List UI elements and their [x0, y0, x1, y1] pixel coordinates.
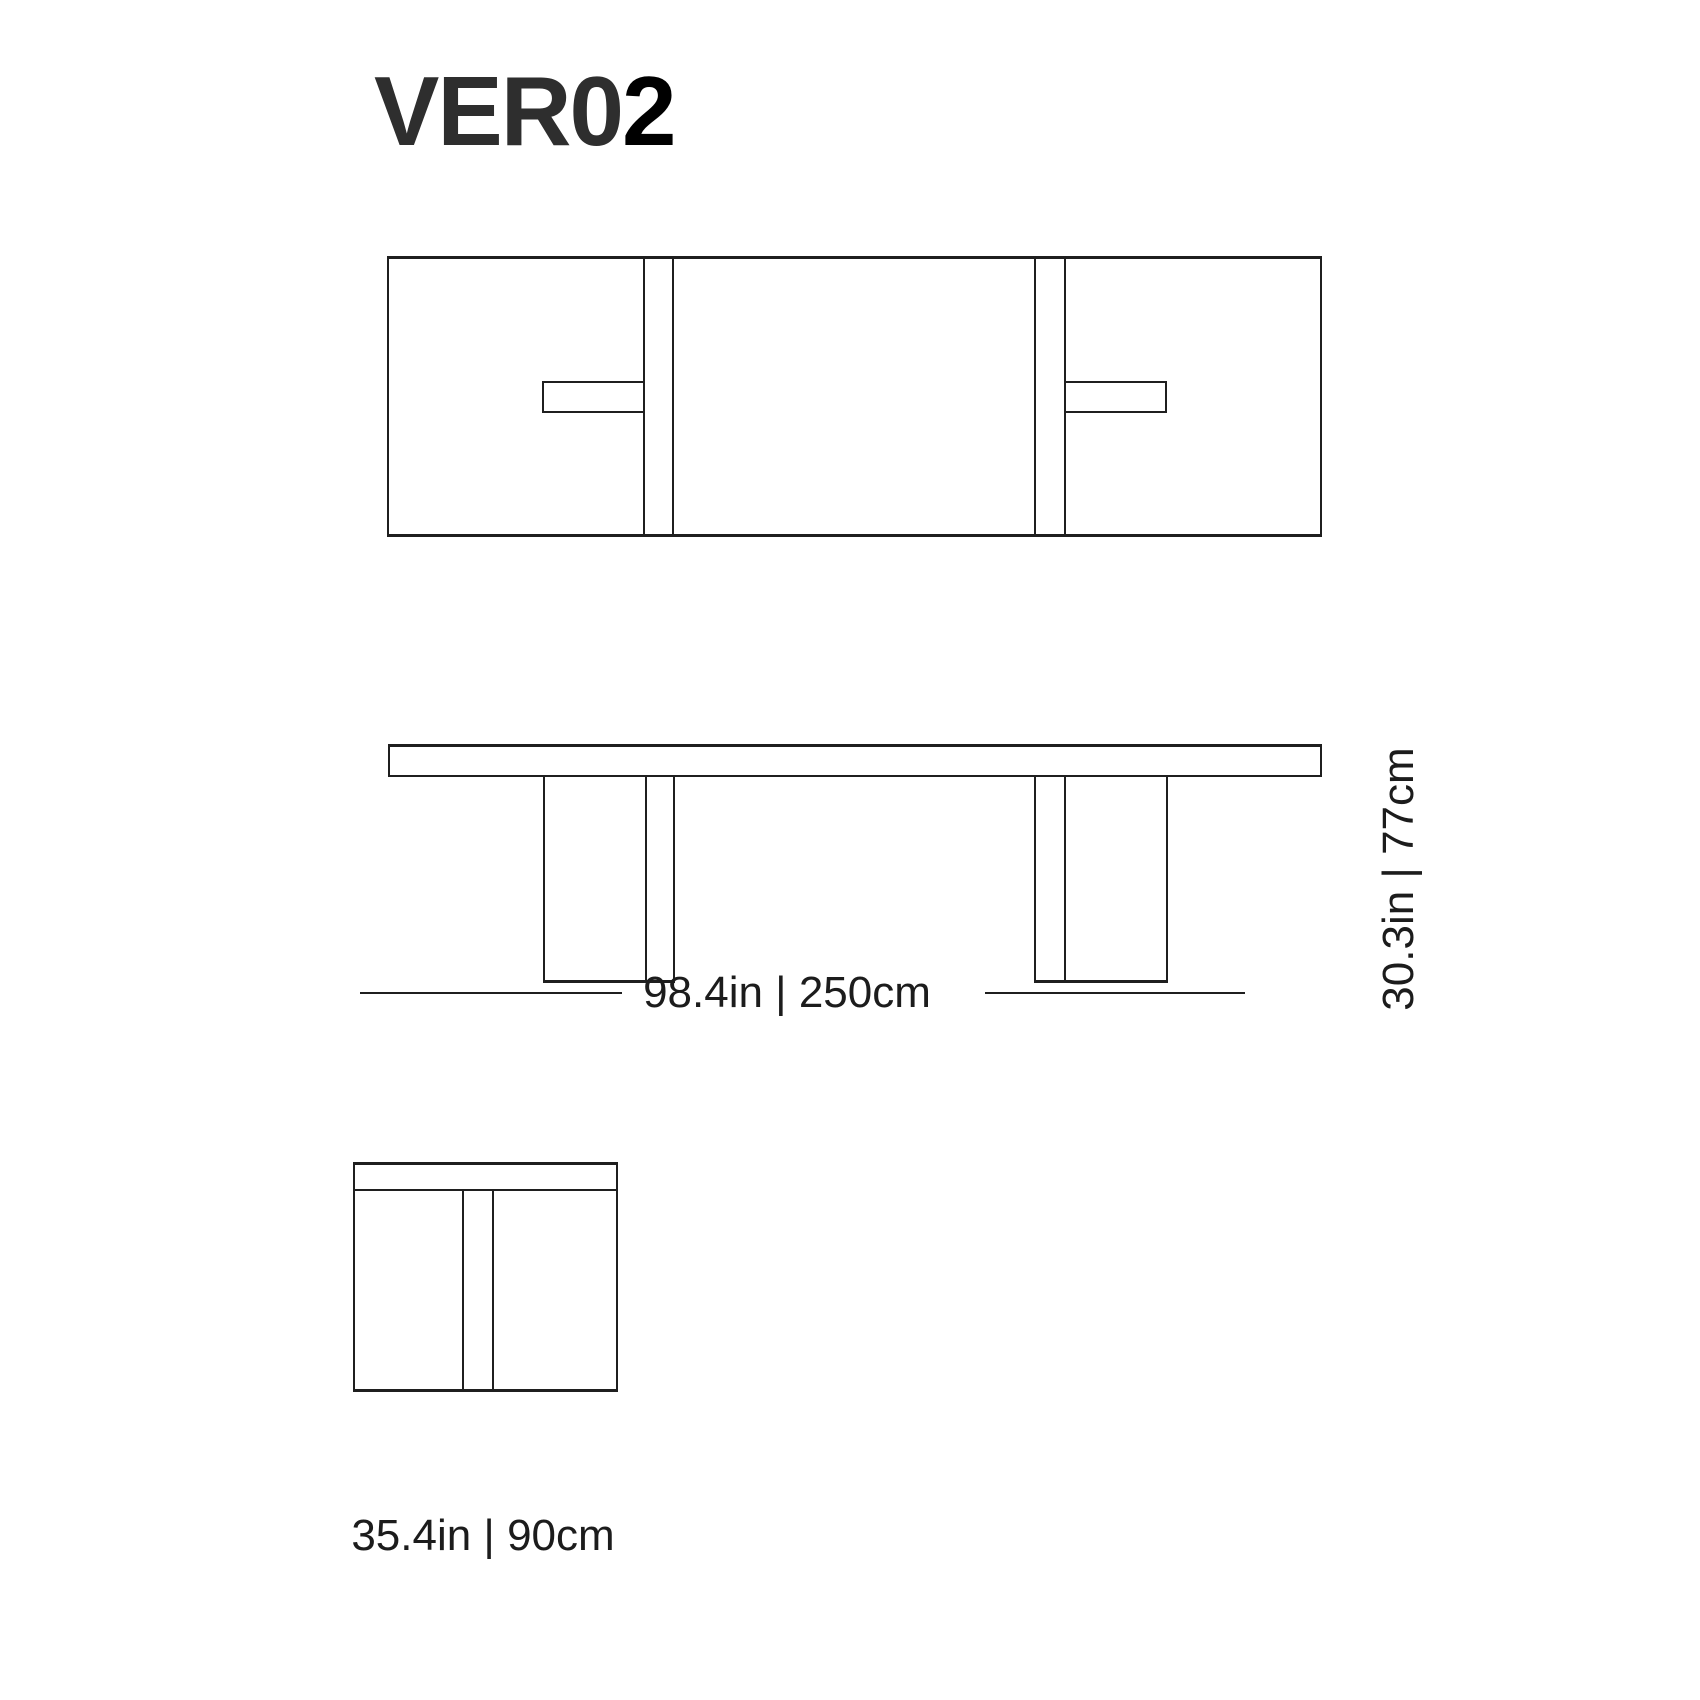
- plan-left-foot-tab: [542, 381, 645, 413]
- model-name-prefix: VER0: [374, 56, 622, 166]
- width-dimension-line-left: [360, 992, 622, 994]
- front-left-leg-foot-column: [543, 777, 647, 983]
- height-dimension-label: 30.3in | 77cm: [1375, 719, 1425, 1039]
- plan-right-leg-plate: [1034, 258, 1066, 535]
- technical-drawing-page: VER02 30.3in | 77cm 98.4in | 250cm 35.4i…: [0, 0, 1700, 1700]
- model-name-suffix: 2: [622, 56, 677, 166]
- page-title: VER02: [374, 62, 677, 160]
- front-right-leg-foot-column: [1064, 777, 1168, 983]
- side-outline: [353, 1162, 618, 1392]
- side-leg-plate-line-right: [492, 1191, 494, 1390]
- front-left-leg-plate-column: [645, 777, 675, 983]
- width-dimension-line-right: [985, 992, 1245, 994]
- plan-tabletop-outline: [387, 256, 1322, 537]
- depth-dimension-label: 35.4in | 90cm: [333, 1512, 633, 1560]
- plan-right-foot-tab: [1064, 381, 1167, 413]
- side-leg-plate-line-left: [462, 1191, 464, 1390]
- plan-left-leg-plate: [643, 258, 674, 535]
- width-dimension-label: 98.4in | 250cm: [627, 969, 947, 1017]
- front-right-leg-plate-column: [1034, 777, 1066, 983]
- side-tabletop-edge-line: [355, 1189, 616, 1191]
- front-tabletop-slab: [388, 744, 1322, 777]
